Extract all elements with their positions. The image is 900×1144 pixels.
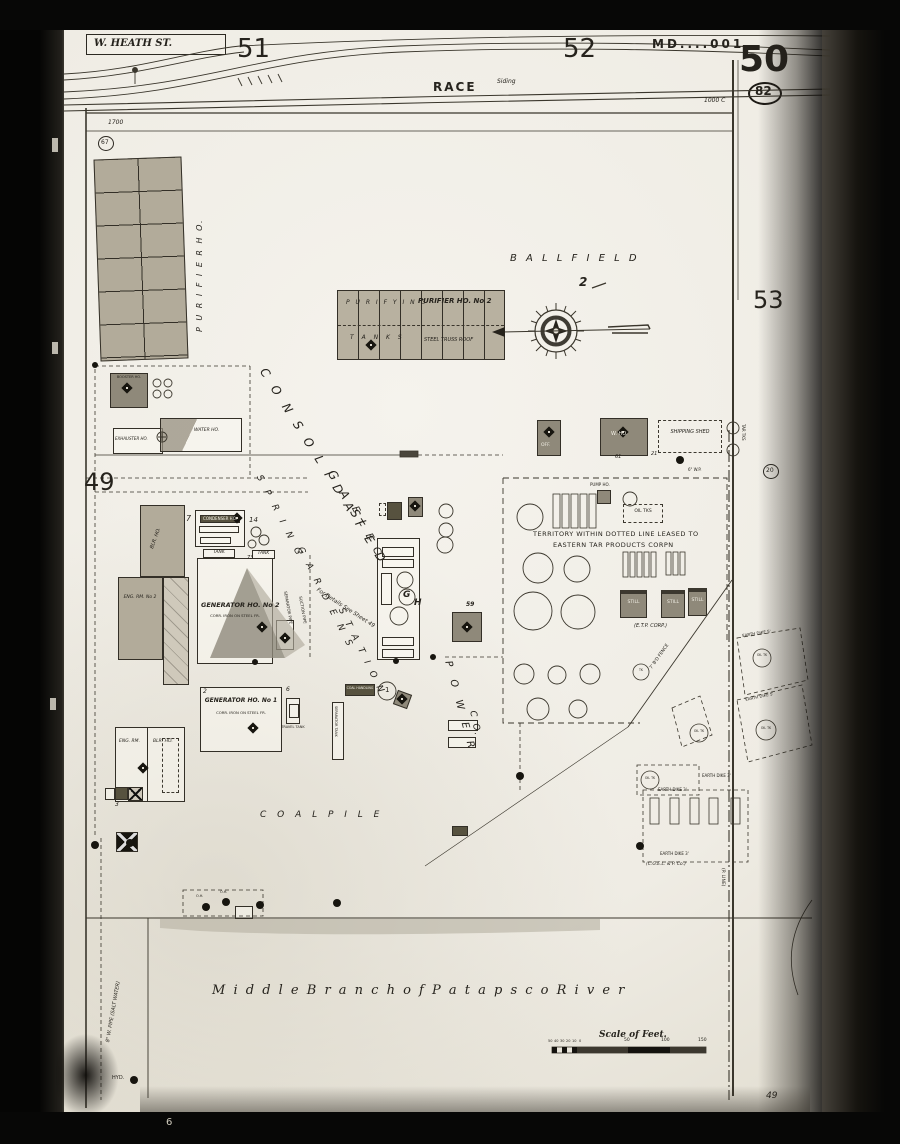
earth-dike-label-5: EARTH DIKE 3' [702,774,731,778]
paper-bottom-shading [140,1086,810,1112]
ball-field-label: B A L L F I E L D [510,254,640,264]
coal-pile-label: C O A L P I L E [260,811,383,820]
separator-tank-label: SEPARATOR TANK [334,706,338,737]
exhauster-house-label: EXHAUSTER HO. [115,437,148,441]
engine-room-no2-label: ENG. RM. No 2 [119,596,161,601]
flag-2-label: 2 [579,276,587,288]
cgelp-label: (C.G.E.L. & P. Co.) [646,863,686,868]
scale-tick: 50 [548,1040,552,1044]
number-7: 7 [186,515,191,523]
adjacent-sheet-49: 49 [84,470,115,494]
number-6: 6 [286,687,290,693]
number-59: 59 [466,602,474,608]
street-name-heath: W. HEATH ST. [94,39,172,49]
tank-label-2: TANK [252,552,275,557]
engine-room-lower-label: ENG. RM. [119,740,140,745]
flag-2-mark [592,283,606,288]
condenser-house-label: CONDENSER HO. [200,517,240,521]
scale-tick-100: 100 [661,1039,670,1044]
oh-label-1: O.H. [196,895,203,899]
adjacent-sheet-51: 51 [237,36,270,62]
scale-bar [552,1047,706,1053]
shipping-shed-label: SHIPPING SHED [662,430,718,435]
still-label-1: STILL [620,601,647,606]
pier-and-shore [86,900,812,1098]
office-label: OFF. [541,444,550,449]
number-3: 3 [115,802,119,808]
scale-title: Scale of Feet. [599,1031,667,1040]
boiler-house-lower-label: BLR. HO. [153,740,173,745]
etp-corp-label: (E.T.P. CORP.) [634,624,667,629]
booster-house-label: BOOSTER HO. [111,376,147,380]
letter-h: H [414,599,422,608]
number-21: 21 [651,452,657,457]
pump-house-label: PUMP HO. [590,483,610,487]
scale-tick: 40 [554,1040,558,1044]
oil-tanks-label: OIL TKS [625,510,661,515]
conveyor-line [95,451,418,457]
territory-note-line1: TERRITORY WITHIN DOTTED LINE LEASED TO [533,531,699,538]
sanborn-map-sheet: { "header": { "heath_st": "W. HEATH ST."… [0,0,900,1144]
warehouse-label: W. HO. [611,432,628,437]
coal-pile-structure [452,826,468,836]
generator-no1-sub: CORR. IRON ON STEEL FR. [208,711,274,715]
travel-tank-label: TRAVEL TANK [276,726,310,730]
paper-edge-shading [758,30,822,1112]
scale-tick: 30 [560,1040,564,1044]
circle-one-label: 1 [385,687,389,694]
tar-tanks-label: TAR TKS [741,424,745,441]
tank-small-label: TK [634,669,648,672]
oh-label-2: O.H. [220,891,227,895]
purifier-house-label: P U R I F I E R H O. [196,218,204,332]
earth-dike-label-3: EARTH DIKE 3' [658,788,687,792]
territory-note-line2: EASTERN TAR PRODUCTS CORPN [553,542,674,549]
race-street-label: RACE [430,81,480,93]
scale-tick: 20 [566,1040,570,1044]
number-2: 2 [203,689,207,695]
hydrant-dots [91,362,684,1084]
purifier-no2-label: PURIFIER HO. No 2 [418,298,492,305]
ref-1700: 1700 [108,120,123,126]
number-14: 14 [249,517,258,524]
circled-67: 67 [101,140,109,146]
scale-tick-150: 150 [698,1039,707,1044]
ref-1000c: 1000 C [704,98,725,104]
still-label-2: STILL [661,601,685,606]
number-73: 73 [247,556,253,561]
siding-label: Siding [497,79,516,85]
letter-g: G [403,591,410,600]
coal-handling-label: COAL HANDLING [345,687,375,690]
catalog-stamp: MD....001 [652,38,744,50]
generator-no2-label: GENERATOR HO. No 2 [201,602,269,609]
compass-needle [492,325,650,337]
earth-dike-label-4: EARTH DIKE 3' [660,852,689,856]
tanks-label: T A N K S [350,335,405,341]
water-pipe-note: 6" W.P. [688,468,701,472]
river-name-label: M i d d l e B r a n c h o f P a t a p s … [212,984,626,997]
scale-tick: 0 [579,1040,581,1044]
number-61: 61 [615,455,621,460]
scale-tick: 10 [572,1040,576,1044]
oil-tank-label-3: OIL TK [685,730,713,733]
steel-truss-label: STEEL TRUSS ROOF [424,338,473,343]
generator-no1-label: GENERATOR HO. No 1 [204,698,278,704]
oil-tank-label-4: OIL TK [636,777,664,780]
adjacent-sheet-52: 52 [563,36,596,62]
tank-label-1: TANK [204,551,234,556]
scale-tick-50: 50 [624,1039,630,1044]
film-frame-number: 6 [166,1118,172,1128]
purifying-label: P U R I F Y I N G [346,300,427,306]
film-stain [56,1020,130,1112]
property-line-label: (P. LINE) [720,868,725,886]
water-house-label: WATER HO. [194,429,219,434]
generator-no2-sub: CORR. IRON ON STEEL FR. [205,614,265,618]
still-label-3: STILL [688,599,707,604]
